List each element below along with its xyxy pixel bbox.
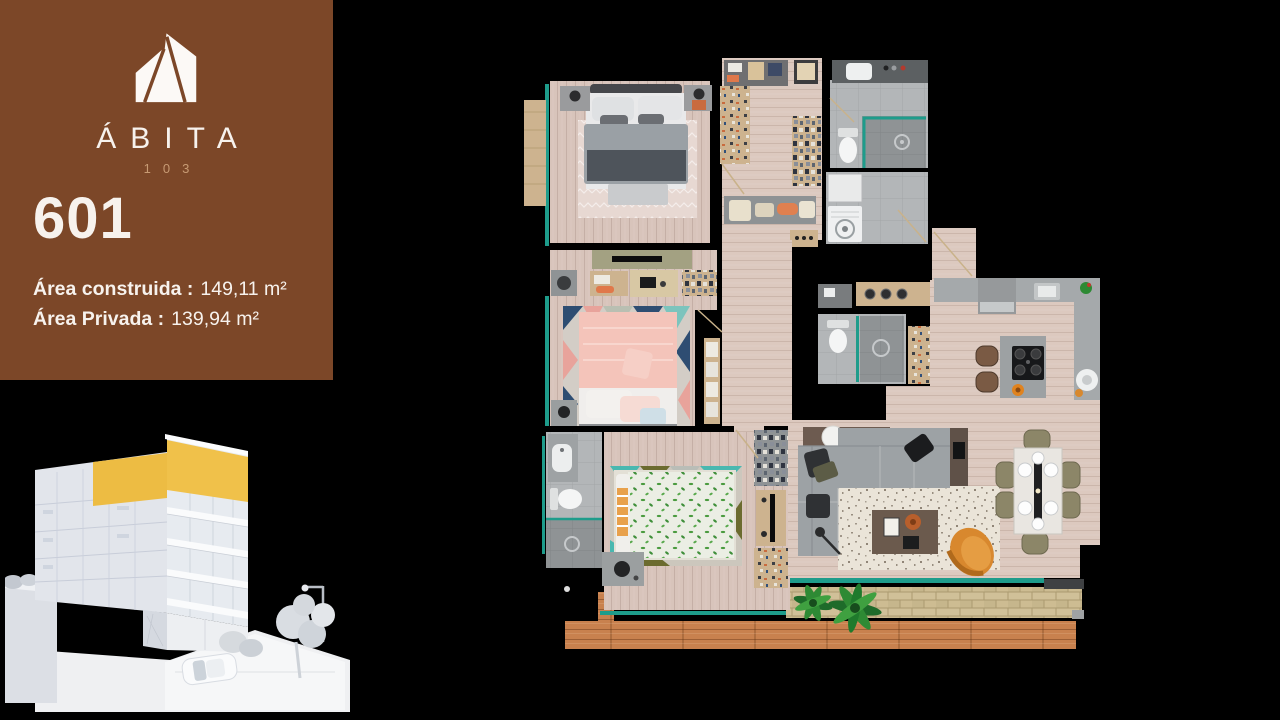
area-built-line: Área construida :149,11 m² xyxy=(33,274,333,304)
floor-plan-svg xyxy=(505,45,1120,667)
lamp xyxy=(570,91,581,102)
washer xyxy=(828,206,862,242)
blanket xyxy=(587,150,686,181)
hall-floor xyxy=(722,240,792,432)
bathroom-3 xyxy=(546,432,602,568)
bedroom2-bed xyxy=(579,312,677,431)
toilet xyxy=(550,488,582,510)
house-logo-icon xyxy=(0,20,333,112)
bar-stool xyxy=(976,346,998,366)
foot-bench xyxy=(608,184,668,205)
tv xyxy=(612,256,662,262)
foyer-closet xyxy=(720,58,822,247)
area-private-label: Área Privada : xyxy=(33,308,164,330)
house-logo-icon-svg xyxy=(124,20,210,112)
living-window xyxy=(786,578,1044,583)
bathroom-1 xyxy=(830,60,928,168)
brand-name: ÁBITA xyxy=(0,122,347,156)
balcony-deck xyxy=(565,621,1076,649)
logo-house-shape xyxy=(135,33,196,102)
bath3-window xyxy=(542,436,545,554)
tv xyxy=(770,494,775,542)
bedroom2-window xyxy=(545,296,549,430)
plate xyxy=(1044,463,1058,477)
dining-chair xyxy=(1060,462,1080,488)
dining-chair xyxy=(996,492,1016,518)
bathroom-2 xyxy=(818,282,932,384)
open-living-area xyxy=(788,228,1100,584)
building-render-svg xyxy=(5,410,350,718)
wall xyxy=(1080,545,1100,578)
plate xyxy=(1018,463,1032,477)
lamp xyxy=(558,406,570,418)
unit-number: 601 xyxy=(33,190,333,248)
pillow xyxy=(640,408,666,426)
bush xyxy=(239,639,263,657)
floor-plan xyxy=(505,45,1120,667)
master-bed xyxy=(584,84,688,205)
building-3d-render xyxy=(5,410,350,718)
kitchen-island xyxy=(1000,336,1046,398)
door-swing xyxy=(698,310,722,332)
dining-chair xyxy=(996,462,1016,488)
building-right-facade xyxy=(165,434,248,627)
master-bedroom xyxy=(524,81,712,243)
plate xyxy=(1044,501,1058,515)
area-built-value: 149,11 m² xyxy=(200,278,286,300)
unit-highlight-left xyxy=(93,453,167,506)
pillow xyxy=(621,348,653,380)
area-built-label: Área construida : xyxy=(33,278,193,300)
bedroom-2 xyxy=(550,250,722,432)
dining-chair xyxy=(1060,492,1080,518)
coffee-table xyxy=(872,510,938,554)
laundry xyxy=(826,172,928,244)
plate xyxy=(1032,452,1044,464)
sink xyxy=(846,63,872,80)
area-info: Área construida :149,11 m² Área Privada … xyxy=(33,274,333,334)
dining-chair xyxy=(1022,532,1048,554)
building-left-facade xyxy=(35,452,167,613)
curtain xyxy=(524,100,546,206)
pillow xyxy=(638,114,664,125)
dining-chair xyxy=(1024,430,1050,450)
project-number: 103 xyxy=(0,161,345,176)
lamp xyxy=(694,89,705,100)
laptop xyxy=(640,277,656,288)
bedroom3-bed xyxy=(614,470,736,560)
brand-panel: ÁBITA 103 601 Área construida :149,11 m²… xyxy=(0,0,333,380)
area-private-value: 139,94 m² xyxy=(171,308,259,330)
marketing-slide: ÁBITA 103 601 Área construida :149,11 m²… xyxy=(0,0,1280,720)
bedroom-3 xyxy=(602,430,790,610)
plate xyxy=(1032,518,1044,530)
bedroom3-wardrobe-column xyxy=(754,430,788,588)
pillow xyxy=(806,494,830,518)
bar-stool xyxy=(976,372,998,392)
plate xyxy=(1018,501,1032,515)
laundry-cabinet xyxy=(828,174,862,202)
bedroom3-window xyxy=(600,611,786,615)
area-private-line: Área Privada :139,94 m² xyxy=(33,304,333,334)
toilet xyxy=(838,128,858,163)
